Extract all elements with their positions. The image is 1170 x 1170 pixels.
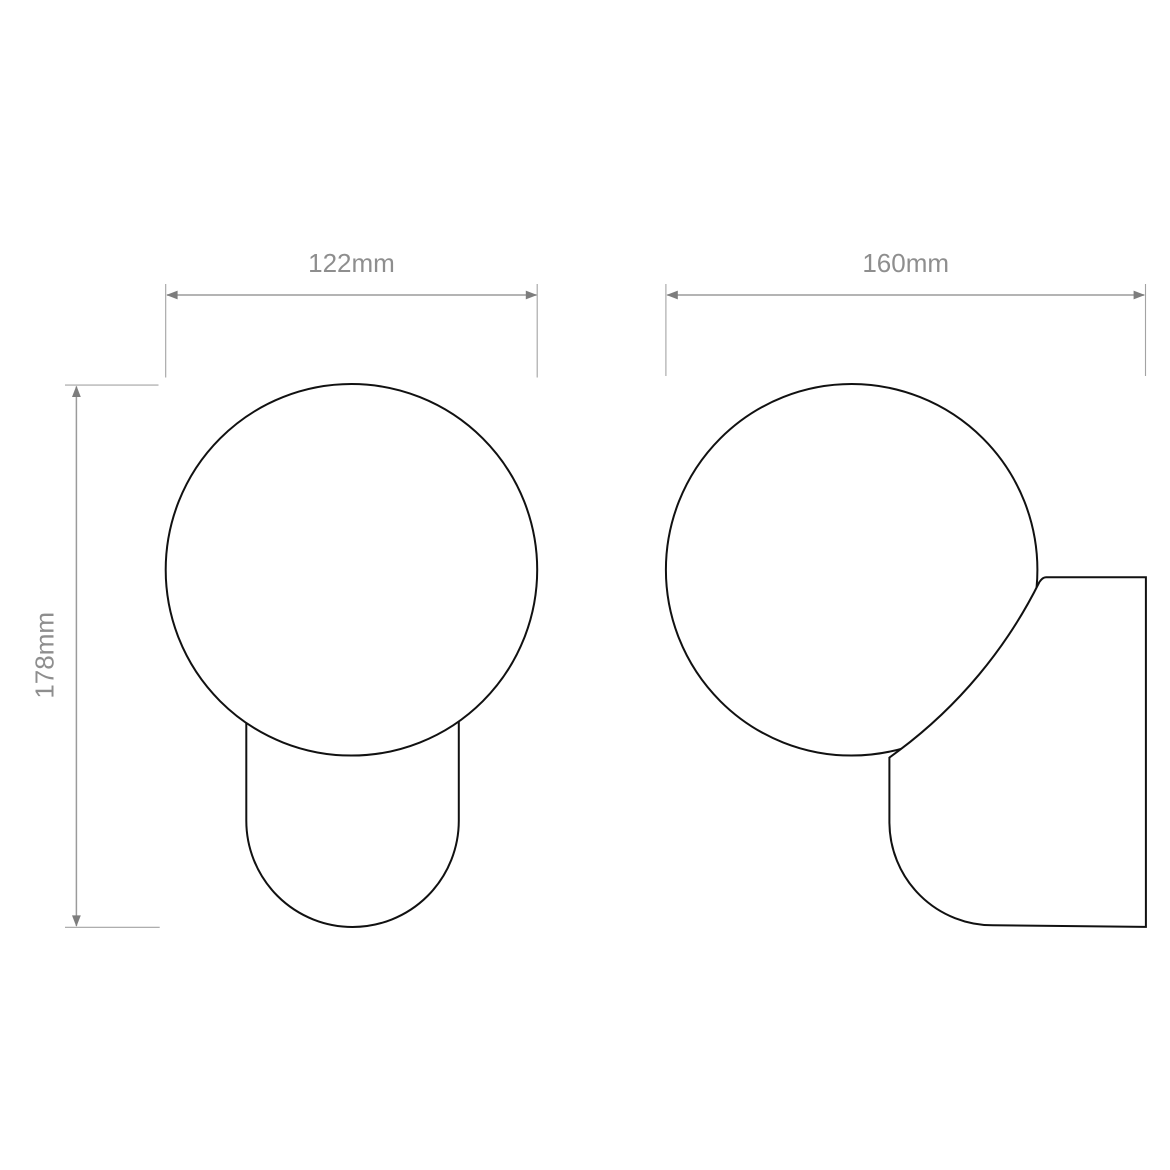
svg-text:122mm: 122mm [308, 248, 395, 278]
svg-text:178mm: 178mm [30, 612, 60, 699]
svg-text:160mm: 160mm [862, 248, 949, 278]
